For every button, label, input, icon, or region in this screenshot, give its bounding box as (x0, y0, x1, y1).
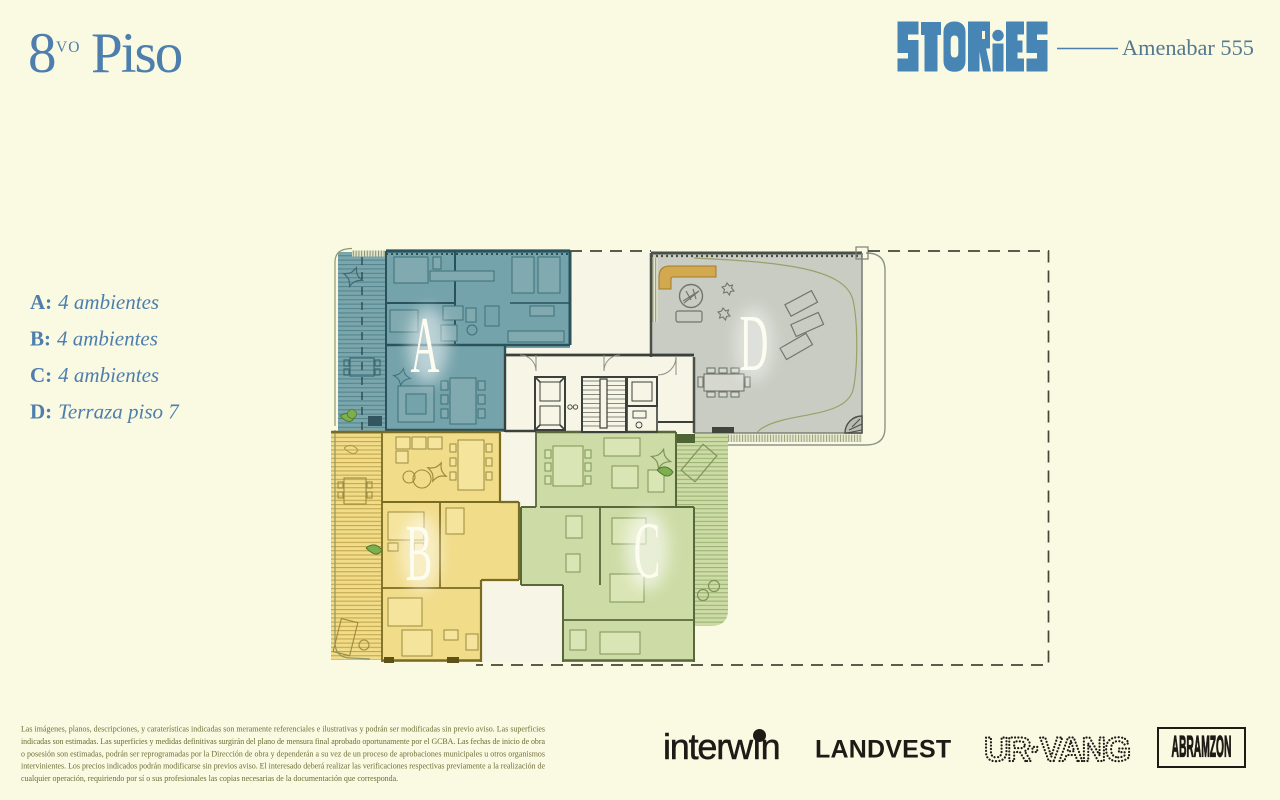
svg-text:ABRAMZON: ABRAMZON (1172, 730, 1232, 763)
svg-text:VO: VO (56, 39, 80, 56)
svg-text:B: B (406, 509, 433, 598)
svg-text:indicadas son estimadas. Las s: indicadas son estimadas. Las superficies… (21, 737, 545, 746)
svg-text:o posesión son estimadas, podr: o posesión son estimadas, podrán ser rep… (21, 749, 545, 758)
svg-text:D:Terraza piso 7: D:Terraza piso 7 (30, 400, 180, 424)
svg-text:C: C (634, 506, 661, 595)
svg-text:D: D (740, 299, 769, 388)
svg-text:B:4 ambientes: B:4 ambientes (30, 327, 158, 351)
svg-text:UR·VANG: UR·VANG (984, 731, 1130, 769)
svg-text:intervinientes. Los precios in: intervinientes. Los precios indicados po… (21, 762, 545, 771)
svg-text:Piso: Piso (91, 22, 182, 85)
svg-text:cualquier operación, requirien: cualquier operación, requiriendo por sí … (21, 774, 398, 783)
svg-text:A:4 ambientes: A:4 ambientes (30, 290, 159, 314)
svg-text:Amenabar 555: Amenabar 555 (1122, 35, 1254, 60)
svg-text:A: A (411, 301, 440, 390)
svg-text:LANDVEST: LANDVEST (815, 736, 951, 764)
svg-text:Las imágenes, planos, descripc: Las imágenes, planos, descripciones, y c… (21, 725, 545, 734)
svg-text:8: 8 (28, 22, 57, 85)
svg-text:C:4 ambientes: C:4 ambientes (30, 363, 159, 387)
